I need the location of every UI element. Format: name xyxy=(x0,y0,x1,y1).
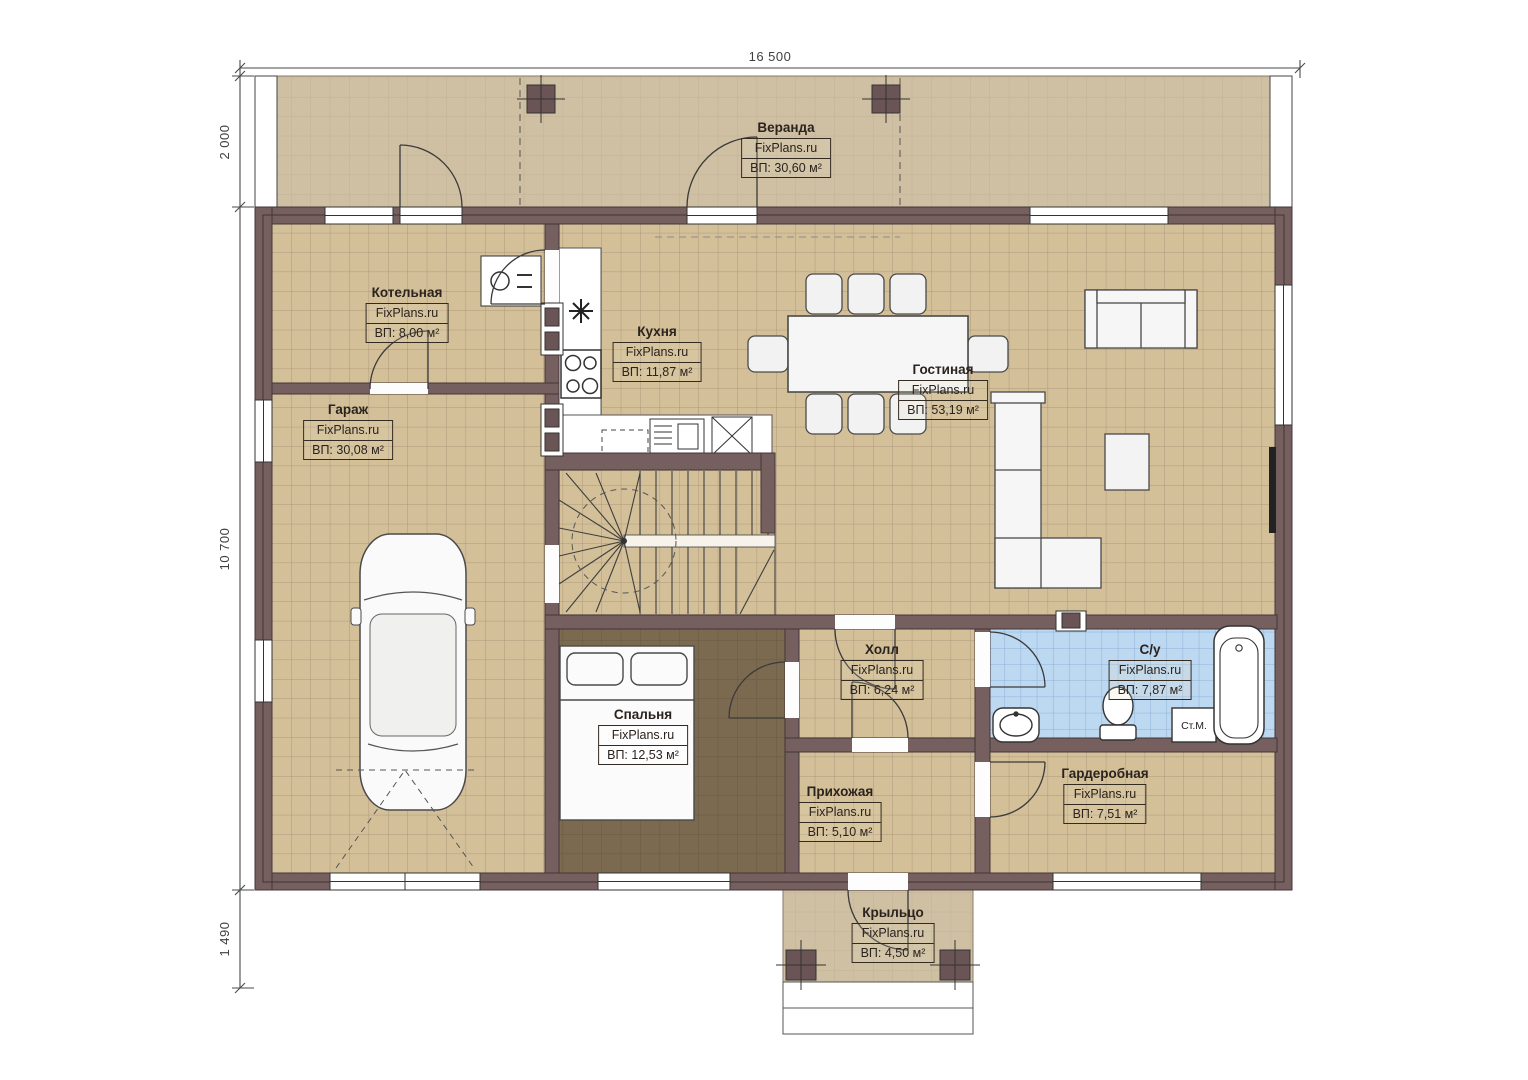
room-label-bedroom: Спальня FixPlans.ruВП: 12,53 м² xyxy=(598,707,688,765)
room-label-wardrobe: Гардеробная FixPlans.ruВП: 7,51 м² xyxy=(1061,766,1148,824)
chair xyxy=(748,336,788,372)
room-area: ВП: 8,00 м² xyxy=(367,324,448,343)
room-name: Прихожая xyxy=(799,784,882,799)
veranda-wall-cap-right xyxy=(1270,76,1292,207)
bathtub-icon xyxy=(1214,626,1264,744)
room-label-porch: Крыльцо FixPlans.ruВП: 4,50 м² xyxy=(852,905,935,963)
room-area: ВП: 11,87 м² xyxy=(614,363,701,382)
glazed-door xyxy=(687,207,757,224)
window xyxy=(1275,285,1292,425)
car-mirror-left xyxy=(351,608,361,625)
pillow xyxy=(631,653,687,685)
washing-machine: Ст.М. xyxy=(1172,708,1216,742)
sofa xyxy=(1085,290,1197,348)
room-name: Котельная xyxy=(366,285,449,300)
window xyxy=(255,640,272,702)
tv-stand xyxy=(1105,434,1149,490)
room-area: ВП: 5,10 м² xyxy=(800,823,881,842)
room-name: Крыльцо xyxy=(852,905,935,920)
dim-house-depth: 10 700 xyxy=(217,528,232,571)
porch-step-1 xyxy=(783,982,973,1008)
room-label-veranda: Веранда FixPlans.ruВП: 30,60 м² xyxy=(741,120,831,178)
window xyxy=(325,207,393,224)
chair xyxy=(890,274,926,314)
stove-icon xyxy=(561,350,601,398)
chair xyxy=(806,274,842,314)
window xyxy=(255,400,272,462)
wall-stairs-top xyxy=(545,453,775,470)
room-name: Кухня xyxy=(613,324,702,339)
window xyxy=(598,873,730,890)
dishwasher-icon xyxy=(650,419,704,453)
room-area: ВП: 7,87 м² xyxy=(1110,681,1191,700)
chair xyxy=(806,394,842,434)
washing-machine-label: Ст.М. xyxy=(1181,720,1207,732)
pillow xyxy=(567,653,623,685)
porch-step-2 xyxy=(783,1008,973,1034)
chair xyxy=(848,394,884,434)
veranda-wall-cap-left xyxy=(255,76,277,207)
dim-veranda-depth: 2 000 xyxy=(217,124,232,159)
window xyxy=(1030,207,1168,224)
room-area: ВП: 53,19 м² xyxy=(899,401,987,420)
room-label-kitchen: Кухня FixPlans.ruВП: 11,87 м² xyxy=(613,324,702,382)
brand-link: FixPlans.ru xyxy=(853,924,934,944)
brand-link: FixPlans.ru xyxy=(599,726,687,746)
room-area: ВП: 4,50 м² xyxy=(853,944,934,963)
chair xyxy=(848,274,884,314)
room-name: Холл xyxy=(841,642,924,657)
brand-link: FixPlans.ru xyxy=(614,343,701,363)
brand-link: FixPlans.ru xyxy=(800,803,881,823)
room-name: Гардеробная xyxy=(1061,766,1148,781)
room-name: Спальня xyxy=(598,707,688,722)
room-label-hall: Холл FixPlans.ruВП: 6,24 м² xyxy=(841,642,924,700)
car-top-view xyxy=(351,534,475,810)
room-name: Веранда xyxy=(741,120,831,135)
brand-link: FixPlans.ru xyxy=(742,139,830,159)
room-area: ВП: 30,60 м² xyxy=(742,159,830,178)
dim-width-total: 16 500 xyxy=(749,49,792,64)
room-name: Гараж xyxy=(303,402,393,417)
boiler-unit xyxy=(481,256,541,306)
garage-gate xyxy=(330,873,480,890)
room-area: ВП: 30,08 м² xyxy=(304,441,392,460)
dim-porch-depth: 1 490 xyxy=(217,921,232,956)
kitchen-sink-cabinet xyxy=(712,417,752,455)
car-mirror-right xyxy=(465,608,475,625)
room-label-boiler: Котельная FixPlans.ruВП: 8,00 м² xyxy=(366,285,449,343)
room-label-bathroom: С/у FixPlans.ruВП: 7,87 м² xyxy=(1109,642,1192,700)
brand-link: FixPlans.ru xyxy=(899,381,987,401)
floor-plan: Ст.М. 16 500 2 000 10 700 1 490 Веранда … xyxy=(0,0,1528,1080)
brand-link: FixPlans.ru xyxy=(304,421,392,441)
brand-link: FixPlans.ru xyxy=(842,661,923,681)
room-area: ВП: 6,24 м² xyxy=(842,681,923,700)
brand-link: FixPlans.ru xyxy=(1065,785,1146,805)
room-label-entry: Прихожая FixPlans.ruВП: 5,10 м² xyxy=(799,784,882,842)
room-name: Гостиная xyxy=(898,362,988,377)
glazed-door xyxy=(400,207,462,224)
brand-link: FixPlans.ru xyxy=(367,304,448,324)
room-area: ВП: 7,51 м² xyxy=(1065,805,1146,824)
room-label-garage: Гараж FixPlans.ruВП: 30,08 м² xyxy=(303,402,393,460)
wall-cross-main xyxy=(545,615,1277,629)
room-name: С/у xyxy=(1109,642,1192,657)
wall-stairs-right xyxy=(761,453,775,533)
room-area: ВП: 12,53 м² xyxy=(599,746,687,765)
sink-icon xyxy=(993,708,1039,742)
brand-link: FixPlans.ru xyxy=(1110,661,1191,681)
radiator xyxy=(1269,447,1276,533)
room-label-living-room: Гостиная FixPlans.ruВП: 53,19 м² xyxy=(898,362,988,420)
window xyxy=(1053,873,1201,890)
